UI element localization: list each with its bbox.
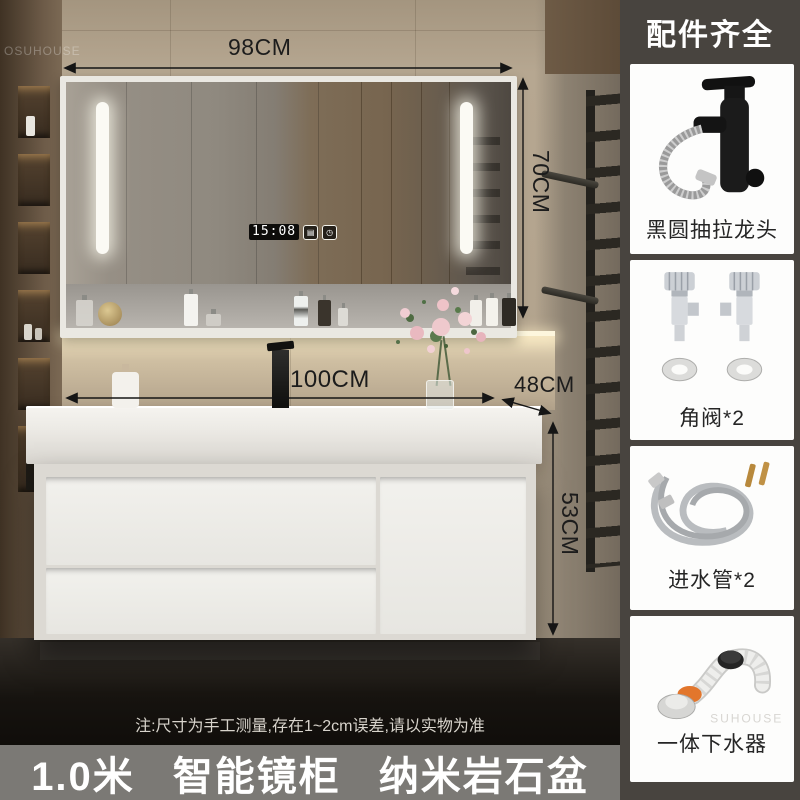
mirror-seam (191, 82, 192, 284)
defog-icon[interactable]: ▤ (303, 225, 318, 240)
photo-watermark: OSUHOUSE (4, 44, 81, 58)
measurement-note: 注:尺寸为手工测量,存在1~2cm误差,请以实物为准 (0, 712, 620, 736)
mirror-clock: 15:08 (249, 224, 299, 240)
bathroom-photo: 15:08 ▤ ◷ (0, 0, 620, 800)
basin-faucet (272, 350, 289, 408)
reed-diffuser (318, 300, 331, 326)
banner-basin: 纳米岩石盆 (379, 744, 589, 800)
niche-bottle (26, 116, 35, 136)
timer-icon[interactable]: ◷ (322, 225, 337, 240)
product-title-banner: 1.0米 智能镜柜 纳米岩石盆 (0, 745, 620, 800)
card-watermark: SUHOUSE (710, 711, 783, 725)
pull-out-faucet-image (630, 64, 794, 214)
accessories-sidebar: 配件齐全 黑圆抽拉龙头 (620, 0, 800, 800)
accessory-label: 角阀*2 (679, 402, 745, 432)
accessory-label: 进水管*2 (668, 564, 756, 594)
sidebar-header: 配件齐全 (620, 0, 800, 64)
product-detail-image: 15:08 ▤ ◷ (0, 0, 800, 800)
stone-basin-countertop (26, 406, 542, 464)
angle-valves-image (630, 260, 794, 402)
niche-bottle (24, 324, 32, 340)
drawer-top[interactable] (46, 477, 376, 565)
cosmetic-jar (206, 314, 221, 326)
mirror-seam (318, 82, 319, 284)
mirror-seam (256, 82, 257, 284)
drain-kit-image: SUHOUSE (630, 616, 794, 728)
dark-bottle (502, 298, 516, 326)
mirror-glass: 15:08 ▤ ◷ (66, 82, 511, 284)
soap-dispenser (112, 372, 139, 408)
shelf-niche (18, 86, 50, 138)
drawer-bottom[interactable] (46, 568, 376, 634)
glass-vase (426, 380, 454, 410)
dim-counter-depth: 48CM (514, 372, 575, 398)
shelf-niche (18, 358, 50, 410)
mirror-display: 15:08 ▤ ◷ (249, 224, 337, 240)
smart-mirror-cabinet: 15:08 ▤ ◷ (60, 76, 517, 338)
shelf-niche (18, 290, 50, 342)
pump-bottle (486, 298, 498, 326)
accessory-label: 一体下水器 (657, 728, 767, 758)
shelf-niche (18, 222, 50, 274)
led-light-strip (96, 102, 109, 254)
accessory-card-faucet: 黑圆抽拉龙头 (630, 64, 794, 254)
banner-size: 1.0米 (31, 744, 135, 800)
wood-plank-seam (391, 82, 392, 284)
accessory-card-drain: SUHOUSE 一体下水器 (630, 616, 794, 782)
led-light-strip (460, 102, 473, 254)
niche-bottle (35, 328, 42, 340)
dim-mirror-height: 70CM (527, 150, 554, 213)
dim-counter-width: 100CM (290, 366, 370, 394)
towel-rack-rungs (586, 94, 620, 569)
wall-seam (0, 30, 620, 31)
labeled-bottle (294, 296, 308, 326)
wood-wall-panel (545, 0, 620, 74)
pump-bottle (184, 294, 198, 326)
small-bottle (338, 308, 348, 326)
mirror-seam (126, 82, 127, 284)
accessory-card-valves: 角阀*2 (630, 260, 794, 440)
cabinet-door[interactable] (380, 477, 526, 634)
accessory-label: 黑圆抽拉龙头 (646, 214, 778, 244)
wood-plank-seam (421, 82, 422, 284)
wood-plank-seam (361, 82, 362, 284)
vanity-cabinet (34, 464, 536, 640)
banner-mirror: 智能镜柜 (173, 744, 341, 800)
inlet-hoses-image (630, 446, 794, 564)
pink-roses (432, 318, 450, 336)
shelf-niche (18, 154, 50, 206)
dim-mirror-width: 98CM (228, 34, 291, 61)
dim-cabinet-height: 53CM (556, 492, 583, 555)
pump-bottle (470, 300, 482, 326)
perfume-bottle (76, 300, 93, 326)
floor-reflection (40, 642, 540, 660)
gold-round-jar (98, 302, 122, 326)
wood-plank-seam (449, 82, 450, 284)
wall-seam (170, 0, 171, 80)
accessory-card-hoses: 进水管*2 (630, 446, 794, 610)
wall-seam (415, 0, 416, 80)
